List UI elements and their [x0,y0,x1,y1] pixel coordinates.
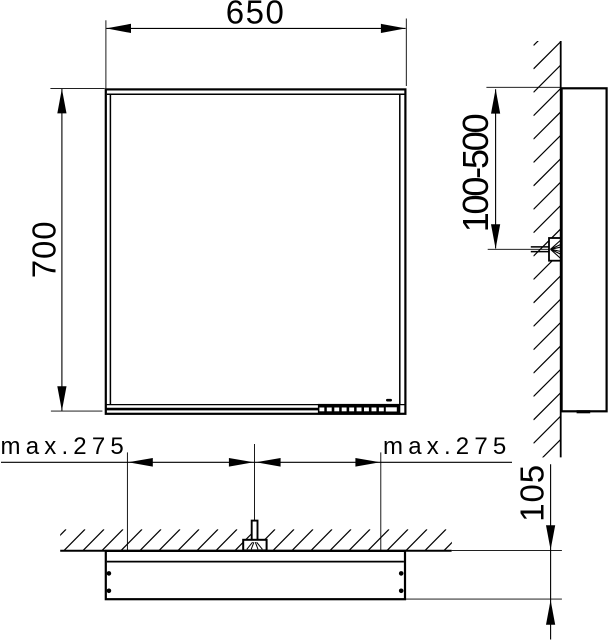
svg-text:700: 700 [26,221,63,279]
svg-text:max.275: max.275 [1,433,129,460]
svg-text:105: 105 [514,464,551,522]
svg-text:max.275: max.275 [383,433,511,460]
svg-text:100-500: 100-500 [455,114,496,232]
svg-text:650: 650 [226,0,286,30]
